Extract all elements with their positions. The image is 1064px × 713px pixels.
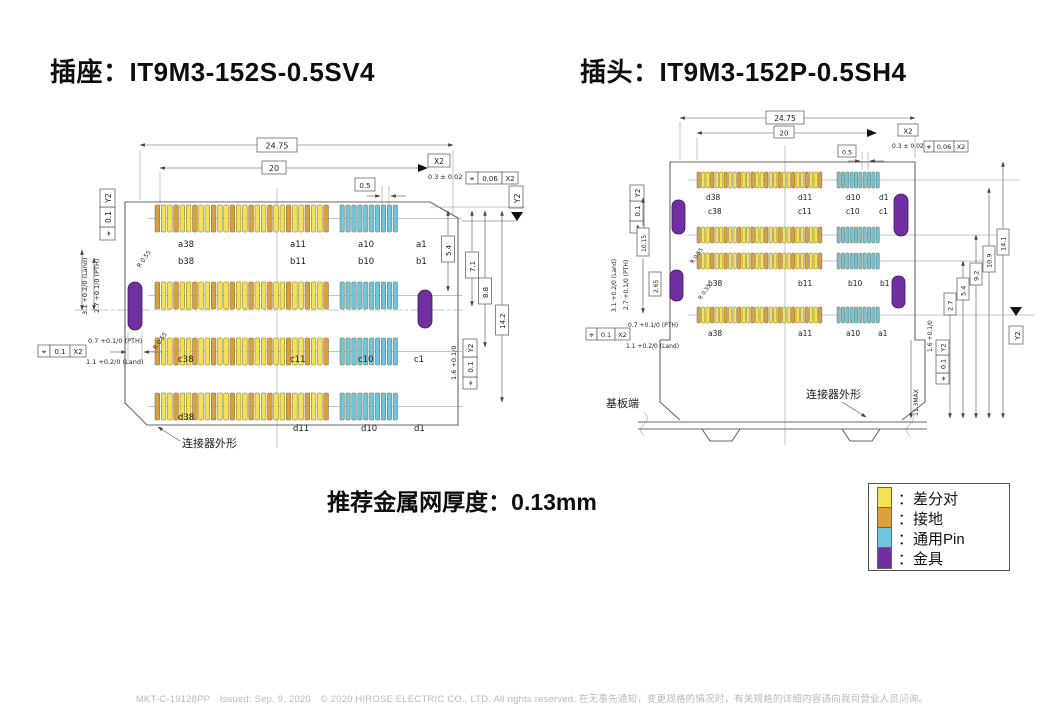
dim-fitting-offset: 2.65 (653, 279, 660, 293)
plug-top-dimensions: 24.75 20 X2 0.3 ± 0.02 ⌖ 0.06 X2 0.5 (680, 111, 968, 170)
legend-label: ：接地 (898, 508, 943, 529)
legend-label: ：通用Pin (898, 528, 965, 549)
pin-label-b10: b10 (848, 279, 863, 288)
dim-height-max: 11.3MAX (913, 389, 920, 416)
socket-diagram: 24.75 20 X2 0.3 ± 0.02 ⌖ 0.06 X2 Y2 0.5 (30, 100, 550, 490)
diff-pair-swatch (877, 487, 892, 509)
pin-rows (155, 205, 398, 420)
legend-row-fitting: ：金具 (877, 548, 1009, 568)
fcf-value: 0.06 (937, 143, 951, 151)
fcf-value: 0.1 (104, 211, 113, 223)
pin-label-c1: c1 (879, 207, 888, 216)
pin-label-a1: a1 (878, 329, 888, 338)
fitting-left-upper (672, 200, 685, 234)
general-pin-swatch (877, 527, 892, 549)
fitting-left-lower (670, 270, 683, 301)
dim-span: 20 (780, 130, 789, 138)
dim-fitting-r2: R 0.55 (152, 331, 169, 351)
datum-x2-label: X2 (903, 128, 912, 136)
pin-label-a10: a10 (846, 329, 860, 338)
dim-hole-pth: 0.7 +0.1/0 (PTH) (88, 337, 142, 345)
datum-y2-label: Y2 (1014, 331, 1022, 341)
plug-outline-label: 连接器外形 (806, 388, 861, 401)
fcf-datum: Y2 (467, 344, 475, 354)
pin-label-a38: a38 (708, 329, 722, 338)
fcf-symbol: ⌖ (467, 380, 476, 385)
pin-label-c38: c38 (178, 355, 194, 365)
dim-row-3: 8.8 (482, 287, 490, 298)
break-mark-left (641, 412, 648, 436)
board-end-label: 基板端 (606, 396, 639, 410)
legend-label: ：差分对 (898, 488, 958, 509)
fcf-value: 0.06 (482, 175, 498, 183)
fcf-value: 0.1 (940, 359, 948, 369)
fcf-symbol: ⌖ (42, 348, 47, 357)
fcf-symbol: ⌖ (470, 175, 475, 184)
dim-overall-width: 24.75 (266, 142, 289, 151)
dim-row-2: 5.4 (960, 286, 968, 296)
dim-hole-land: 1.1 +0.2/0 (Land) (626, 343, 679, 350)
position-tolerance-frame-left: ⌖ 0.1 Y2 (630, 185, 644, 233)
dim-pad-len: 1.6 +0.1/0 (927, 320, 934, 352)
pin-label-b10: b10 (358, 257, 374, 267)
position-tolerance-frame-top: ⌖ 0.06 X2 (924, 141, 968, 152)
position-tolerance-frame-bottom: ⌖ 0.1 X2 (38, 345, 86, 357)
hirose-connector-datasheet-page: { "page": { "socket_title": "插座：IT9M3-15… (0, 0, 1064, 713)
pin-label-c10: c10 (358, 355, 374, 365)
fcf-value: 0.1 (634, 205, 642, 216)
position-tolerance-frame-left: ⌖ 0.1 Y2 (100, 189, 115, 240)
footer-copyright: MKT-C-19128PP Issued: Sep. 9, 2020 © 202… (0, 691, 1064, 705)
dim-fitting-r1: R 0.55 (136, 249, 153, 269)
socket-right-dimensions: 5.4 7.1 8.8 14.2 1.6 +0.1/0 ⌖ 0.1 Y2 (430, 207, 525, 402)
pin-label-d11: d11 (798, 193, 813, 202)
dim-lead-len: 0.5 (359, 182, 370, 190)
fitting-right-lower (892, 276, 905, 308)
pin-label-a11: a11 (290, 240, 306, 250)
dim-overall-width: 24.75 (774, 114, 796, 123)
legend: ：差分对 ：接地 ：通用Pin ：金具 (868, 483, 1010, 571)
position-tolerance-frame-right: ⌖ 0.1 Y2 (936, 340, 949, 384)
pin-label-a1: a1 (416, 240, 427, 250)
fcf-value: 0.1 (601, 331, 611, 339)
plug-diagram: 24.75 20 X2 0.3 ± 0.02 ⌖ 0.06 X2 0.5 ⌖ (580, 100, 1060, 490)
fcf-value: 0.1 (467, 361, 475, 372)
dim-row-1: 2.7 (947, 301, 955, 311)
thickness-note: 推荐金属网厚度：0.13mm (0, 483, 924, 517)
fcf-datum: X2 (957, 143, 966, 151)
pin-label-b38: b38 (178, 257, 194, 267)
fitting-right-upper (894, 194, 908, 236)
pin-label-b11: b11 (798, 279, 813, 288)
pin-label-d1: d1 (414, 424, 425, 434)
dim-pad-len: 1.6 +0.1/0 (450, 345, 458, 380)
fitting-right (418, 290, 432, 328)
pin-label-c11: c11 (290, 355, 306, 365)
fcf-datum: X2 (618, 331, 627, 339)
socket-title: 插座：IT9M3-152S-0.5SV4 (50, 52, 375, 89)
dim-lead-tol: 0.3 ± 0.02 (428, 173, 462, 181)
legend-row-ground: ：接地 (877, 508, 1009, 528)
legend-label: ：金具 (898, 548, 943, 569)
pin-label-d38: d38 (706, 193, 721, 202)
ground-swatch (877, 507, 892, 529)
pin-label-a11: a11 (798, 329, 812, 338)
position-tolerance-frame-top: ⌖ 0.06 X2 (466, 172, 518, 184)
plug-title: 插头：IT9M3-152P-0.5SH4 (580, 52, 906, 89)
dim-fitting-span: 10.15 (641, 235, 648, 252)
dim-row-5: 14.1 (1000, 237, 1008, 251)
position-tolerance-frame-right: ⌖ 0.1 Y2 (463, 339, 477, 389)
dim-row-1: 5.4 (445, 244, 453, 256)
position-tolerance-frame-bottom: ⌖ 0.1 X2 (586, 328, 630, 340)
dim-row-4: 14.2 (499, 313, 507, 329)
dim-lead-tol: 0.3 ± 0.02 (892, 143, 924, 150)
legend-row-diff-pair: ：差分对 (877, 488, 1009, 508)
dim-row-2: 7.1 (469, 261, 477, 272)
pin-label-b1: b1 (416, 257, 427, 267)
pin-label-b1: b1 (880, 279, 890, 288)
dim-lead-len: 0.5 (842, 149, 852, 157)
dim-hole-land: 1.1 +0.2/0 (Land) (86, 358, 144, 366)
fcf-value: 0.1 (54, 348, 65, 356)
pin-label-c10: c10 (846, 207, 860, 216)
fcf-symbol: ⌖ (105, 231, 115, 236)
fcf-datum: X2 (505, 175, 514, 183)
fcf-datum: Y2 (634, 189, 642, 199)
dim-fitting-land: 3.1 +0.2/0 (Land) (611, 259, 618, 312)
dim-fitting-pth: 2.7 +0.1/0 (PTH) (623, 260, 630, 310)
pin-label-c1: c1 (414, 355, 424, 365)
pin-label-d11: d11 (293, 424, 309, 434)
pin-label-d1: d1 (879, 193, 889, 202)
pin-label-d10: d10 (361, 424, 377, 434)
pin-label-d38: d38 (178, 413, 194, 423)
fcf-datum: X2 (73, 348, 82, 356)
pin-label-c11: c11 (798, 207, 812, 216)
fcf-datum: Y2 (940, 343, 948, 352)
legend-row-general-pin: ：通用Pin (877, 528, 1009, 548)
plug-left-dimensions: ⌖ 0.1 Y2 3.1 +0.2/0 (Land) 2.7 +0.1/0 (P… (586, 185, 713, 410)
datum-x2-label: X2 (434, 157, 444, 166)
pin-label-a38: a38 (178, 240, 194, 250)
socket-outline-label: 连接器外形 (182, 437, 237, 450)
pin-label-d10: d10 (846, 193, 861, 202)
pin-label-c38: c38 (708, 207, 722, 216)
dim-span: 20 (269, 164, 279, 173)
fitting-left (128, 282, 142, 330)
dim-row-4: 10.9 (986, 254, 994, 268)
datum-y2-label: Y2 (513, 193, 522, 204)
pin-label-b11: b11 (290, 257, 306, 267)
fcf-datum: Y2 (104, 193, 113, 204)
dim-row-3: 9.2 (973, 271, 981, 281)
pin-label-a10: a10 (358, 240, 374, 250)
fitting-swatch (877, 547, 892, 569)
pin-label-b38: b38 (708, 279, 723, 288)
dim-hole-pth: 0.7 +0.1/0 (PTH) (628, 322, 678, 329)
